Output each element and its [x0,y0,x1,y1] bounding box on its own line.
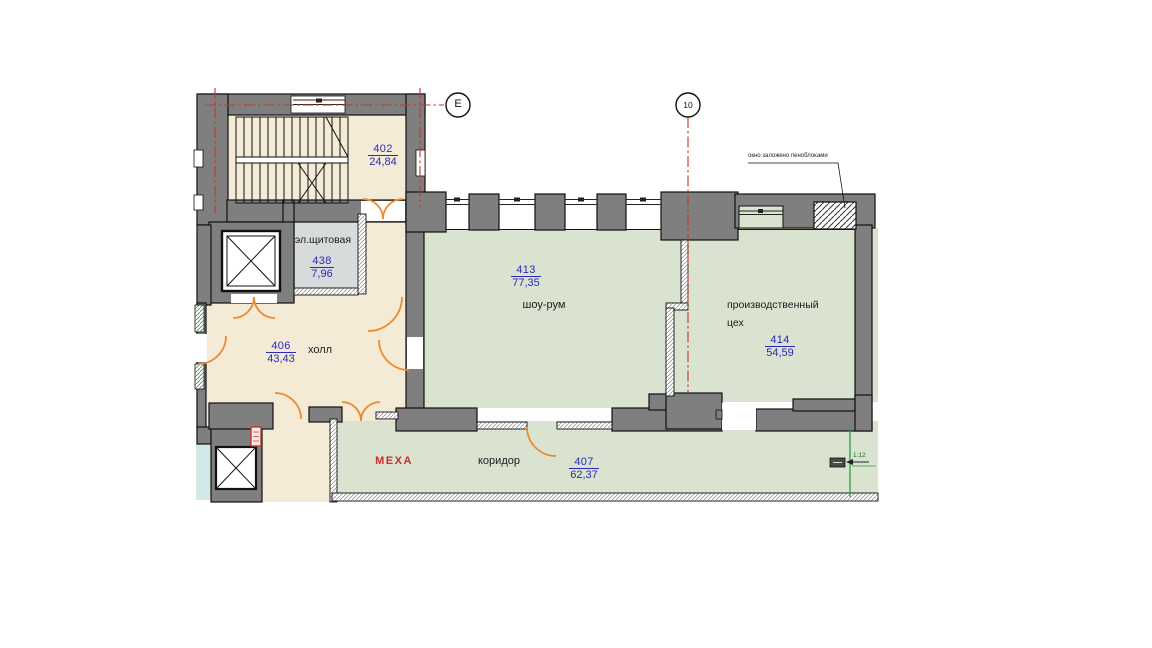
room-area-438: 7,96 [310,267,333,280]
room-number-402: 402 [370,143,395,155]
room-413-fill [424,229,682,408]
room-area-407: 62,37 [569,468,599,481]
room-name-414: производственный цех [727,296,827,333]
grid-bubble-10-label: 10 [676,100,700,110]
fire-cabinet-icon [251,427,261,446]
room-number-413: 413 [513,264,538,276]
room-number-414: 414 [767,334,792,346]
grid-bubble-e-label: E [446,98,470,110]
room-area-413: 77,35 [511,276,541,289]
room-414-jog-fill [672,308,690,396]
floor-plan-canvas: E 10 402 24,84 438 7,96 406 43,43 413 77… [0,0,1152,648]
zone-label-mecha: МЕХА [362,455,426,467]
room-name-438: эл.щитовая [284,234,362,246]
room-number-438: 438 [309,255,334,267]
elevator-shaft-lower [216,447,256,489]
light-blue-strip [196,442,211,500]
room-area-414: 54,59 [765,346,795,359]
room-number-407: 407 [571,456,596,468]
room-number-406: 406 [268,340,293,352]
room-label-438: 438 7,96 [294,255,350,281]
blocked-window-hatch [814,202,856,229]
room-label-413: 413 77,35 [498,264,554,290]
floor-plan-drawing [0,0,1152,648]
ramp-slope-label: 1:12 [853,452,866,459]
room-name-413: шоу-рум [513,299,575,311]
room-area-406: 43,43 [266,352,296,365]
room-area-402: 24,84 [368,155,398,168]
adjacent-room-sliver [872,228,878,402]
vestibule-fill [262,425,330,502]
room-label-414: 414 54,59 [752,334,808,360]
room-name-406: холл [300,344,340,356]
room-name-407: коридор [468,455,530,467]
room-406-upper-strip [366,219,406,297]
elevator-shaft-upper [222,231,280,291]
blocked-window-annotation: окно заложено пеноблоками [748,153,828,159]
room-label-407: 407 62,37 [556,456,612,482]
room-label-402: 402 24,84 [355,143,411,169]
